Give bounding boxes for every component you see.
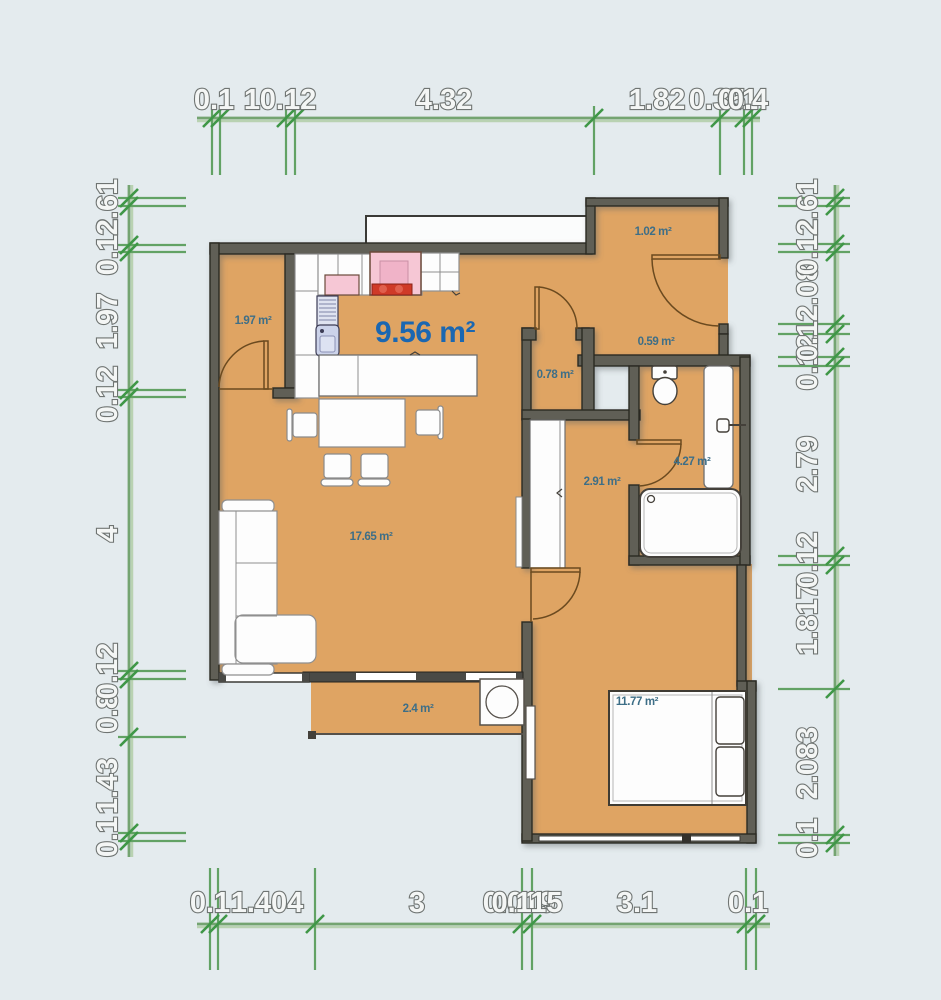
svg-text:0.12: 0.12 xyxy=(92,643,124,699)
svg-text:3: 3 xyxy=(409,887,425,919)
svg-text:1: 1 xyxy=(244,84,260,116)
svg-text:11.77 m²: 11.77 m² xyxy=(616,696,659,708)
svg-text:2.79: 2.79 xyxy=(792,436,824,492)
svg-text:0.1: 0.1 xyxy=(190,887,230,919)
svg-text:2.4 m²: 2.4 m² xyxy=(403,703,434,715)
svg-text:1.43: 1.43 xyxy=(92,758,124,814)
svg-text:2.61: 2.61 xyxy=(792,179,824,235)
svg-text:0.1: 0.1 xyxy=(92,817,124,857)
svg-text:0.1: 0.1 xyxy=(728,887,768,919)
svg-text:1.817: 1.817 xyxy=(792,583,824,656)
svg-text:0.115: 0.115 xyxy=(492,887,563,919)
svg-text:1.97 m²: 1.97 m² xyxy=(235,315,272,327)
svg-text:9.56 m²: 9.56 m² xyxy=(375,316,475,349)
svg-text:0.12: 0.12 xyxy=(260,84,316,116)
svg-text:0.1: 0.1 xyxy=(792,321,824,361)
svg-text:4: 4 xyxy=(92,526,124,542)
svg-text:3.1: 3.1 xyxy=(617,887,657,919)
svg-text:0.59 m²: 0.59 m² xyxy=(638,336,675,348)
svg-text:2.083: 2.083 xyxy=(792,727,824,800)
svg-text:0.78 m²: 0.78 m² xyxy=(537,369,574,381)
svg-text:4.32: 4.32 xyxy=(416,84,472,116)
svg-text:1.82: 1.82 xyxy=(629,84,685,116)
svg-text:0.1: 0.1 xyxy=(792,818,824,858)
svg-text:1.404: 1.404 xyxy=(231,887,304,919)
svg-text:1.02 m²: 1.02 m² xyxy=(635,226,672,238)
svg-text:1.97: 1.97 xyxy=(92,293,124,349)
svg-text:2.61: 2.61 xyxy=(92,179,124,235)
svg-text:4.27 m²: 4.27 m² xyxy=(674,456,711,468)
svg-text:17.65 m²: 17.65 m² xyxy=(350,531,393,543)
svg-text:0.12: 0.12 xyxy=(792,532,824,588)
svg-text:0.4: 0.4 xyxy=(728,84,768,116)
svg-text:0.1: 0.1 xyxy=(194,84,234,116)
svg-text:0.12: 0.12 xyxy=(92,366,124,422)
svg-text:2.91 m²: 2.91 m² xyxy=(584,476,621,488)
